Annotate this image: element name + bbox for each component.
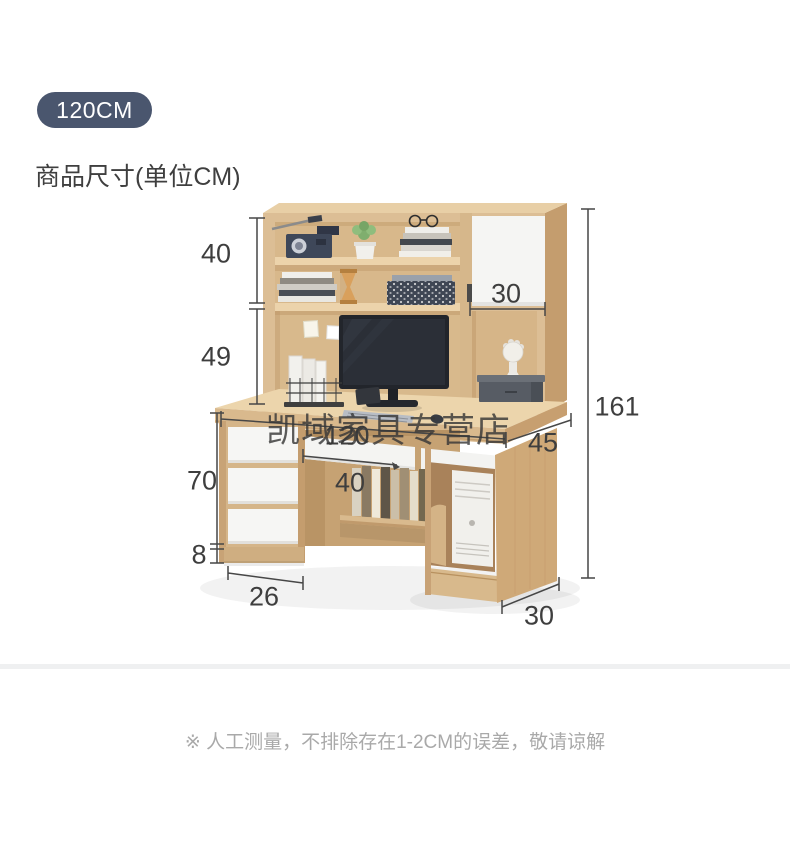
dim-upper-shelf-height: 40	[201, 239, 231, 270]
dim-door-width: 30	[491, 279, 521, 310]
store-watermark: 凯域家具专营店	[266, 403, 511, 452]
dim-desk-depth: 45	[528, 428, 558, 459]
dim-pedestal-width: 26	[249, 582, 279, 613]
dim-open-shelf-height: 49	[201, 342, 231, 373]
dim-tray-width: 40	[335, 468, 365, 499]
dim-side-depth: 30	[524, 601, 554, 632]
dim-total-height: 161	[594, 392, 639, 423]
dim-desk-height: 70	[187, 466, 217, 497]
dim-base-height: 8	[191, 540, 206, 571]
section-divider	[0, 664, 790, 669]
measurement-note: ※ 人工测量，不排除存在1-2CM的误差，敬请谅解	[0, 727, 790, 754]
door-handle	[467, 284, 472, 302]
